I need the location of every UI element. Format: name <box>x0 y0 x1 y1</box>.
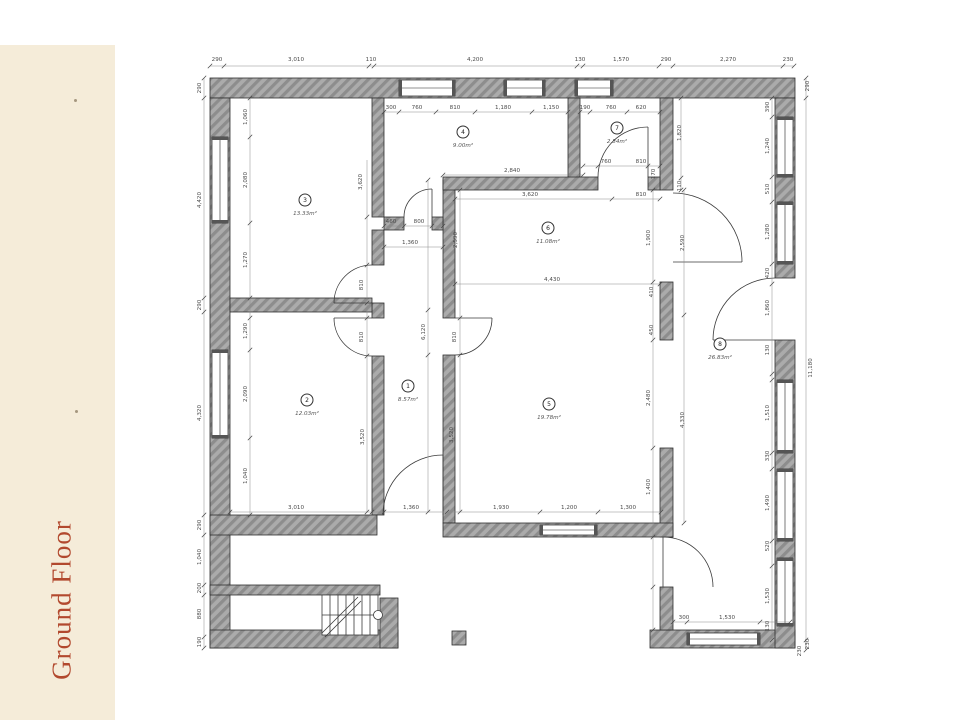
dim-label: 810 <box>359 331 365 342</box>
dim-label: 460 <box>386 219 397 225</box>
room-number: 1 <box>406 383 410 390</box>
dim-label: 4,320 <box>197 405 203 421</box>
window-cap <box>687 633 690 645</box>
dim-label: 230 <box>783 57 794 63</box>
wall-stair-stub <box>380 598 398 648</box>
dim-label: 880 <box>197 608 203 619</box>
window-cap <box>594 525 597 535</box>
dim-label: 170 <box>651 168 657 179</box>
dim-label: 620 <box>636 105 647 111</box>
wall-int <box>372 98 384 217</box>
room-number: 7 <box>615 125 619 132</box>
dim-label: 200 <box>197 582 203 593</box>
dim-label: 130 <box>575 57 586 63</box>
wall-int <box>372 230 384 265</box>
dim-label: 3,010 <box>288 57 304 63</box>
window-cap <box>757 633 760 645</box>
wall-top <box>210 78 795 98</box>
dim-label: 800 <box>414 219 425 225</box>
dim-label: 810 <box>636 159 647 165</box>
dim-label: 390 <box>765 101 771 112</box>
dim-label: 1,240 <box>765 138 771 154</box>
dim-label: 110 <box>366 57 377 63</box>
room-area: 9.00m² <box>453 142 474 149</box>
dim-label: 130 <box>765 620 771 631</box>
dim-label: 2,840 <box>504 168 520 174</box>
dim-label: 1,270 <box>243 252 249 268</box>
wall-int <box>443 177 598 190</box>
dim-label: 1,860 <box>765 300 771 316</box>
door-arc <box>663 537 713 587</box>
room-area: 2.84m² <box>607 138 628 145</box>
dim-label: 1,360 <box>402 240 418 246</box>
dim-label: 4,430 <box>544 277 560 283</box>
dim-label: 2,090 <box>243 386 249 402</box>
dim-label: 810 <box>636 192 647 198</box>
room-number: 3 <box>303 197 307 204</box>
room-area: 12.03m² <box>295 410 319 417</box>
floor-plan: 2903,0101104,2001301,5702902,27023030076… <box>0 0 960 720</box>
window-cap <box>610 80 613 96</box>
dim-label: 760 <box>606 105 617 111</box>
dim-label: 1,360 <box>403 505 419 511</box>
dim-label: 1,040 <box>197 549 203 565</box>
dim-label: 1,200 <box>561 505 577 511</box>
dim-label: 3,520 <box>449 427 455 443</box>
dim-label: 6,120 <box>421 324 427 340</box>
dim-label: 290 <box>212 57 223 63</box>
porch-pillar <box>452 631 466 645</box>
room-area: 19.78m² <box>537 414 561 421</box>
dim-label: 2,270 <box>720 57 736 63</box>
room-area: 11.08m² <box>536 238 560 245</box>
dim-label: 450 <box>649 324 655 335</box>
dim-label: 4,330 <box>680 412 686 428</box>
dim-label: 760 <box>412 105 423 111</box>
dim-label: 510 <box>765 183 771 194</box>
wall-int <box>660 98 673 190</box>
window-cap <box>504 80 507 96</box>
window-cap <box>540 525 543 535</box>
window-cap <box>212 350 228 353</box>
dim-label: 1,820 <box>677 125 683 141</box>
dim-label: 290 <box>197 82 203 93</box>
door-arc <box>598 127 648 177</box>
dim-label: 11,180 <box>808 358 814 378</box>
sidebar-panel: Ground Floor <box>0 45 115 720</box>
windows <box>212 80 793 645</box>
dim-label: 290 <box>661 57 672 63</box>
dim-label: 1,280 <box>765 224 771 240</box>
window-cap <box>777 469 793 472</box>
dim-label: 1,570 <box>613 57 629 63</box>
dim-label: 2,590 <box>453 232 459 248</box>
room-area: 13.33m² <box>293 210 317 217</box>
dim-label: 1,930 <box>493 505 509 511</box>
window-cap <box>542 80 545 96</box>
dim-label: 4,200 <box>467 57 483 63</box>
staircase <box>322 595 383 637</box>
dim-label: 3,010 <box>288 505 304 511</box>
window-cap <box>777 174 793 177</box>
door-arc <box>334 265 372 303</box>
room-number: 4 <box>461 129 465 136</box>
dim-label: 3,620 <box>358 174 364 190</box>
dim-label: 4,420 <box>197 192 203 208</box>
dim-label: 290 <box>805 80 811 91</box>
dim-label: 1,060 <box>243 109 249 125</box>
dim-label: 1,180 <box>495 105 511 111</box>
window-cap <box>777 558 793 561</box>
dim-label: 190 <box>197 636 203 647</box>
window-cap <box>777 450 793 453</box>
dim-label: 290 <box>197 299 203 310</box>
walls <box>210 78 795 648</box>
dim-label: 290 <box>197 519 203 530</box>
dim-label: 520 <box>765 540 771 551</box>
wall-int <box>210 515 377 535</box>
sidebar-dot <box>75 410 78 413</box>
dim-label: 1,490 <box>765 495 771 511</box>
room-number: 5 <box>547 401 551 408</box>
dim-label: 110 <box>677 180 683 191</box>
dim-label: 1,150 <box>543 105 559 111</box>
wall-int <box>230 298 372 312</box>
dim-label: 1,040 <box>243 468 249 484</box>
door-arc <box>334 318 372 356</box>
wall-int <box>372 356 384 515</box>
window-cap <box>777 261 793 264</box>
room-area: 26.83m² <box>708 354 732 361</box>
dim-label: 230 <box>805 638 811 649</box>
dim-label: 1,530 <box>719 615 735 621</box>
dim-label: 420 <box>765 267 771 278</box>
dim-label: 3,520 <box>360 429 366 445</box>
dim-label: 2,590 <box>680 235 686 251</box>
room-number: 8 <box>718 341 722 348</box>
dim-label: 230 <box>797 645 803 656</box>
dim-label: 1,900 <box>646 230 652 246</box>
dim-label: 810 <box>359 279 365 290</box>
window-cap <box>777 117 793 120</box>
dim-label: 300 <box>386 105 397 111</box>
wall-int <box>372 303 384 318</box>
wall-int <box>210 585 380 595</box>
dim-label: 810 <box>452 331 458 342</box>
window-cap <box>212 435 228 438</box>
dim-label: 2,080 <box>243 172 249 188</box>
dim-label: 1,530 <box>765 588 771 604</box>
wall-int <box>660 282 673 340</box>
window-cap <box>212 137 228 140</box>
dim-label: 1,400 <box>646 479 652 495</box>
dim-label: 300 <box>679 615 690 621</box>
window-cap <box>777 538 793 541</box>
dim-label: 1,290 <box>243 323 249 339</box>
dim-label: 130 <box>765 344 771 355</box>
window-cap <box>212 220 228 223</box>
dim-label: 410 <box>649 286 655 297</box>
window-cap <box>399 80 402 96</box>
window-cap <box>777 202 793 205</box>
window-cap <box>575 80 578 96</box>
door-arc <box>455 318 492 355</box>
room-area: 8.57m² <box>398 396 419 403</box>
dim-label: 3,620 <box>522 192 538 198</box>
room-number: 6 <box>546 225 550 232</box>
dim-label: 2,480 <box>646 390 652 406</box>
sidebar-dot <box>74 99 77 102</box>
window-cap <box>777 380 793 383</box>
dim-label: 190 <box>580 105 591 111</box>
window-cap <box>452 80 455 96</box>
window-cap <box>777 623 793 626</box>
dim-label: 330 <box>765 450 771 461</box>
dim-label: 1,510 <box>765 405 771 421</box>
room-number: 2 <box>305 397 309 404</box>
dim-label: 1,300 <box>620 505 636 511</box>
floor-title: Ground Floor <box>47 520 78 680</box>
dim-label: 760 <box>601 159 612 165</box>
stair-newel <box>374 611 383 620</box>
dim-label: 810 <box>450 105 461 111</box>
